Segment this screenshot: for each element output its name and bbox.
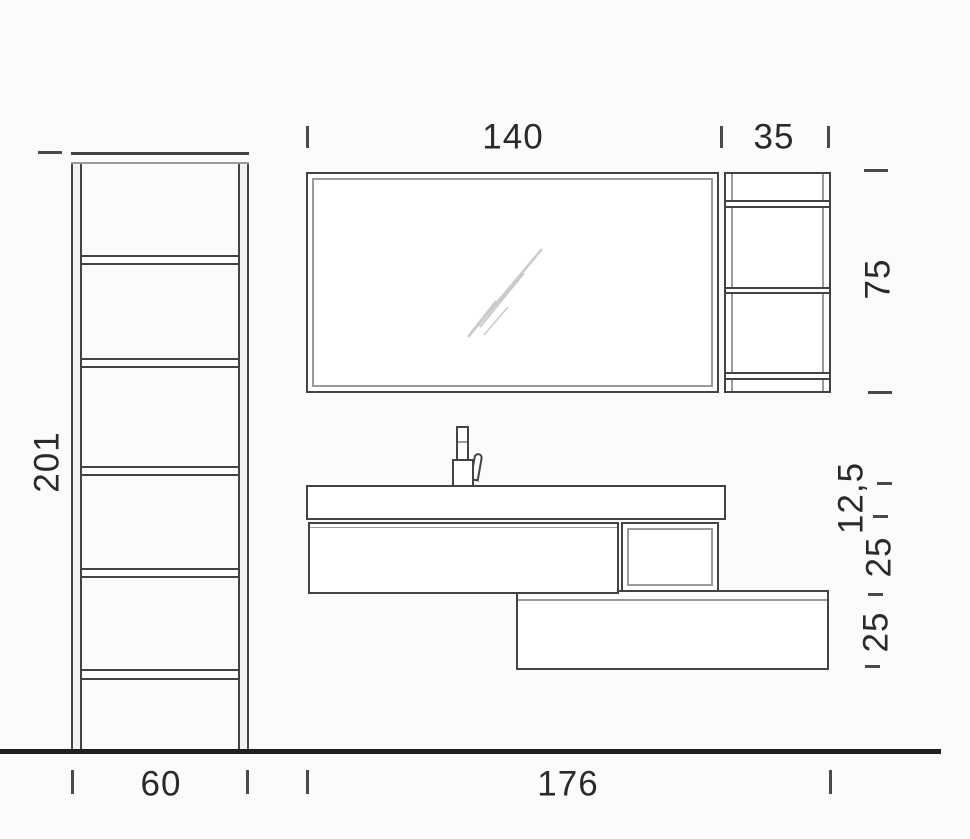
dim-dash	[865, 665, 880, 668]
floor-line	[0, 749, 941, 754]
dim-dash	[877, 482, 892, 485]
dim-label-upper-cabinet-height: 25	[862, 537, 897, 578]
dim-tick	[720, 126, 723, 148]
dim-tick	[306, 126, 309, 148]
washbasin-cabinet	[308, 522, 619, 594]
dim-label-countertop-thickness: 12,5	[834, 462, 869, 534]
dim-tick	[71, 770, 74, 794]
tall-unit-left-rail	[71, 152, 82, 750]
dim-tick	[827, 126, 830, 148]
dim-dash	[868, 391, 892, 394]
tall-unit-shelf	[82, 255, 238, 265]
dim-dash	[868, 593, 883, 596]
dim-label-tall-unit-width: 60	[141, 767, 182, 802]
mirror-glare-icon	[450, 235, 560, 345]
open-compartment-inner	[627, 528, 713, 586]
dim-label-side-shelf-width: 35	[754, 120, 795, 155]
dim-label-lower-cabinet-height: 25	[859, 612, 894, 653]
side-shelf-band	[726, 200, 829, 208]
tall-unit-shelf	[82, 358, 238, 368]
tall-unit-shelf	[82, 669, 238, 680]
dim-label-side-shelf-height: 75	[861, 259, 896, 300]
side-shelf-band	[726, 372, 829, 380]
dim-tick	[829, 770, 832, 794]
faucet-spout-line	[458, 441, 467, 443]
side-shelf-band	[726, 287, 829, 294]
tall-unit-top-cap	[71, 152, 249, 164]
faucet-body	[452, 459, 474, 487]
lower-drawer-cabinet	[516, 590, 829, 670]
dim-dash	[38, 151, 62, 154]
lower-drawer-top-line	[518, 599, 827, 601]
tall-unit-shelf	[82, 466, 238, 476]
dim-label-mirror-width: 140	[482, 120, 543, 155]
dim-dash	[864, 169, 888, 172]
dim-label-tall-unit-height: 201	[30, 431, 65, 492]
tall-unit-shelf	[82, 568, 238, 578]
dim-dash	[873, 515, 888, 518]
dim-label-vanity-total-width: 176	[537, 767, 598, 802]
dim-tick	[306, 770, 309, 794]
dim-tick	[246, 770, 249, 794]
tall-unit-right-rail	[238, 152, 249, 750]
faucet-spout-riser	[456, 426, 469, 463]
countertop	[306, 485, 726, 520]
washbasin-cabinet-top-line	[310, 527, 617, 528]
technical-drawing-canvas: 140 35 201 75 12,5 25 25 60 176	[0, 0, 970, 839]
